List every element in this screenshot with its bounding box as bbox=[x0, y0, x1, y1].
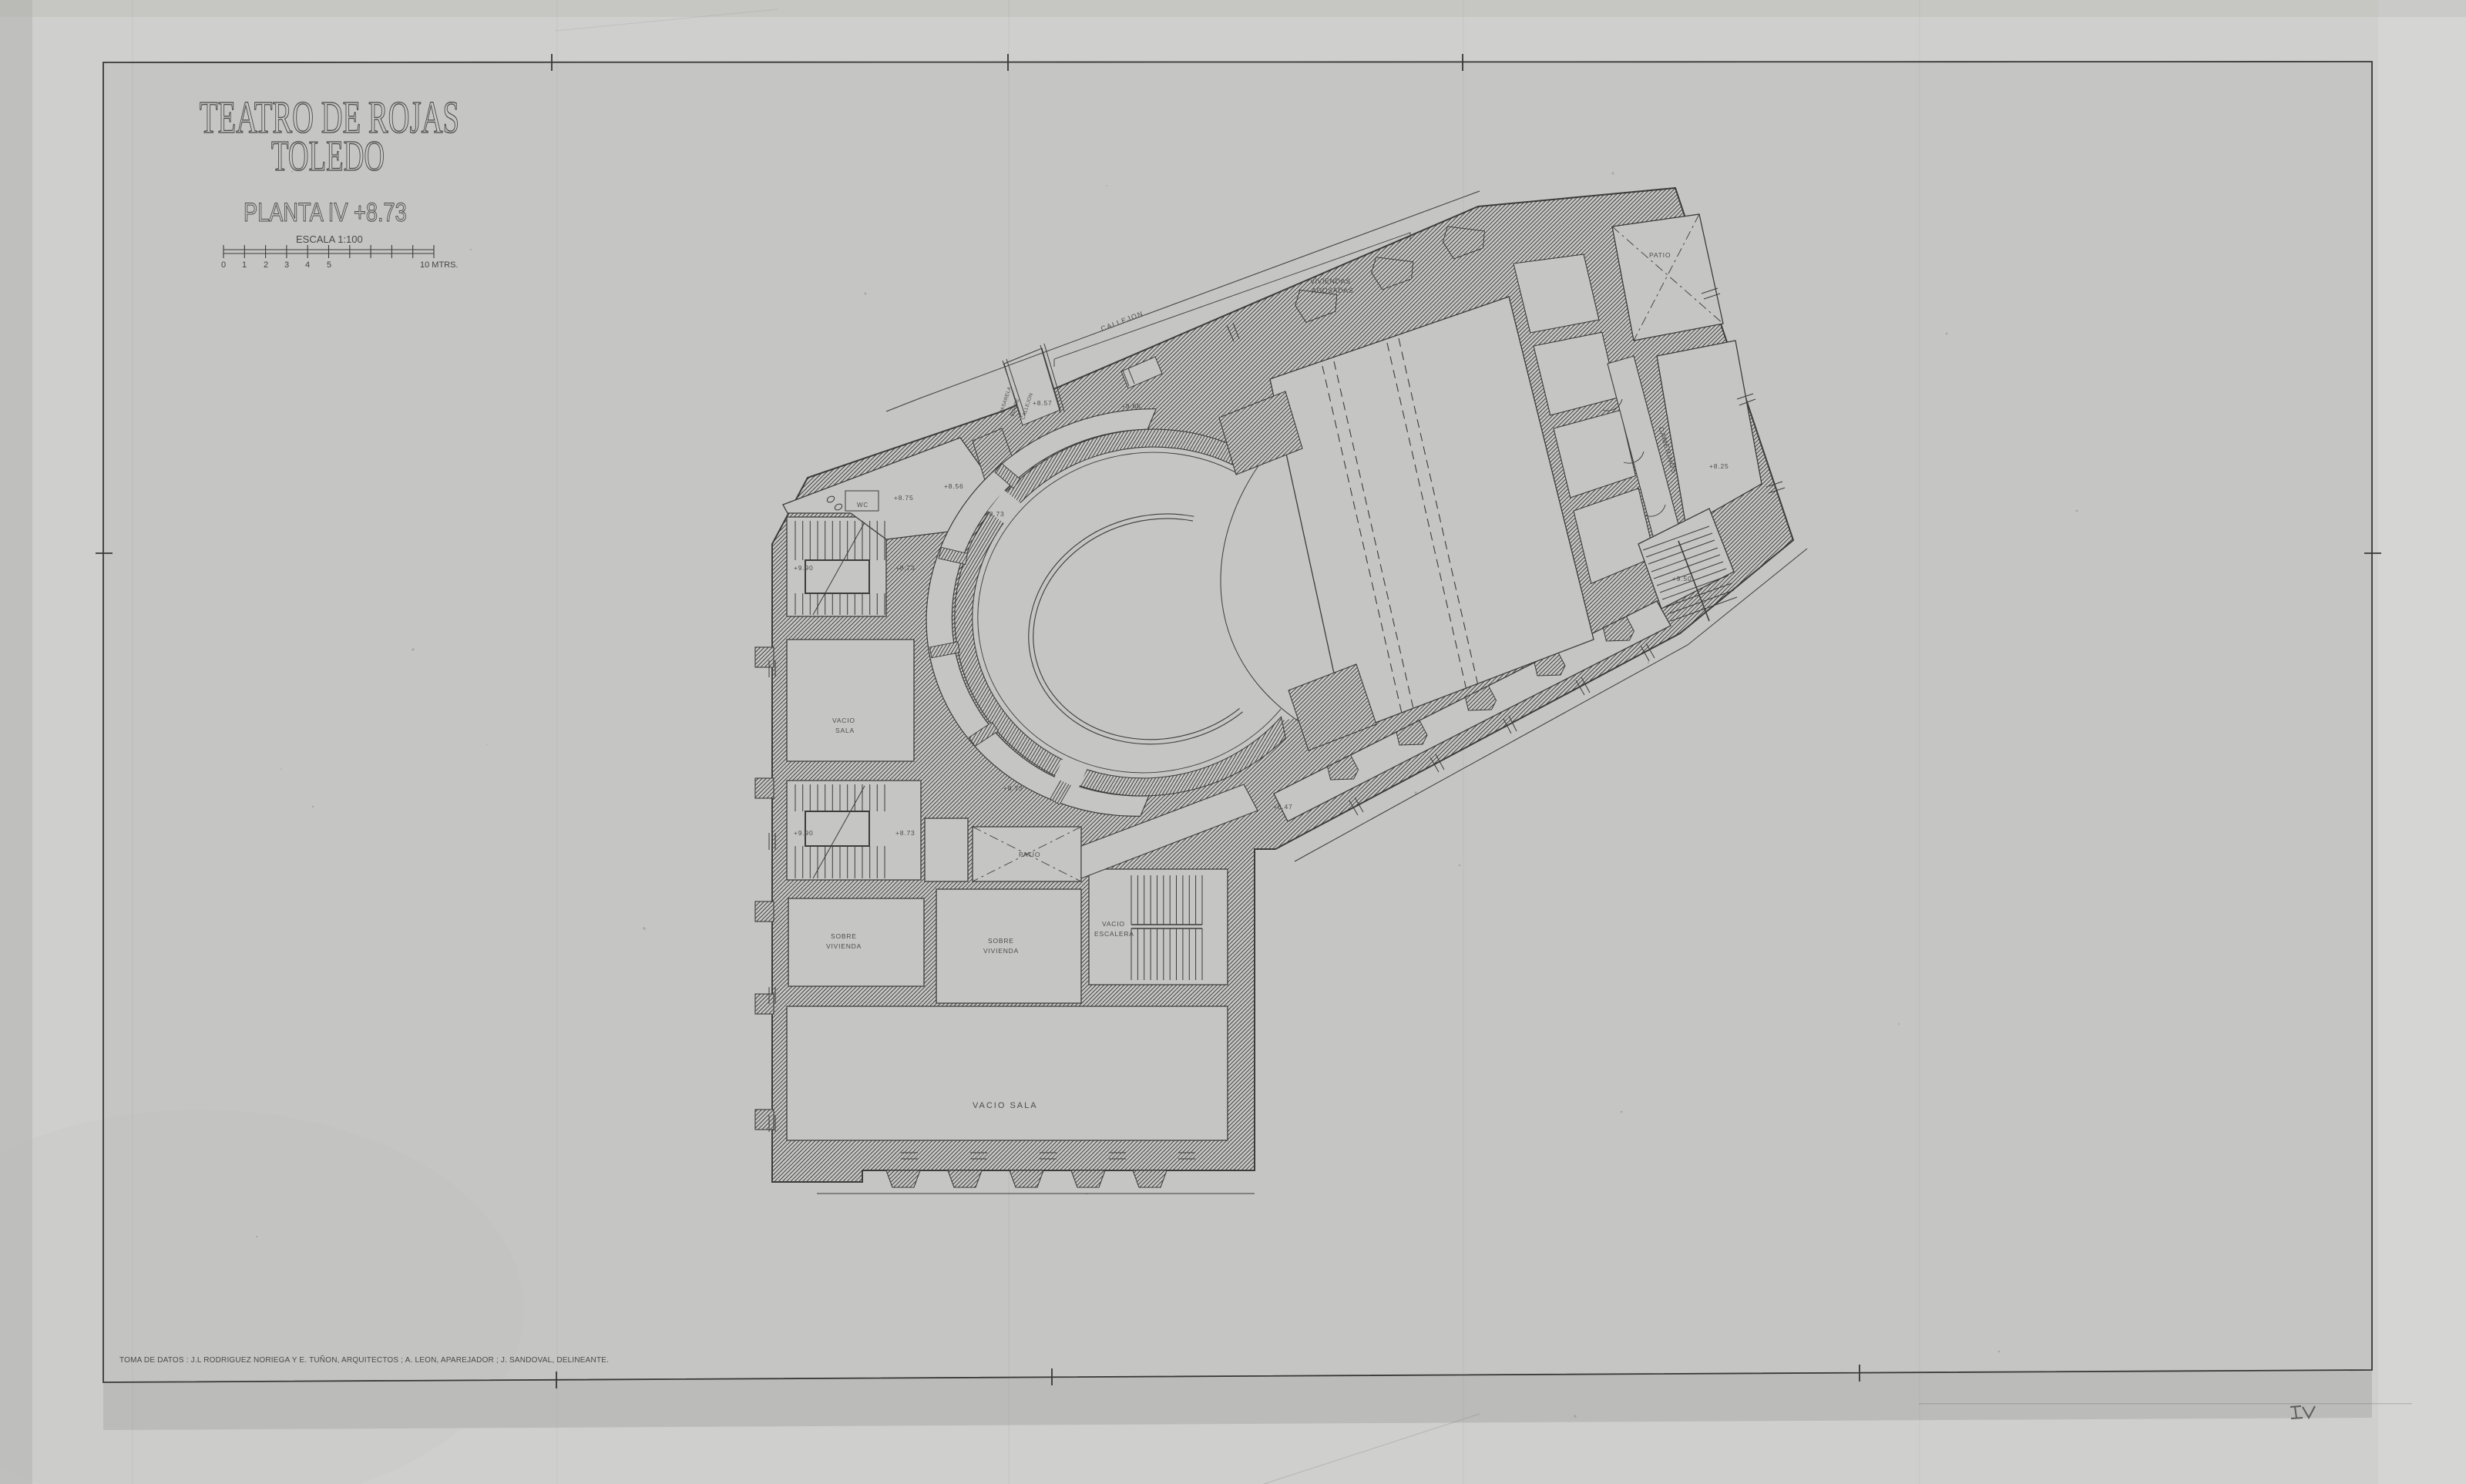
svg-text:ESCALERA: ESCALERA bbox=[1094, 930, 1134, 938]
svg-text:+8.73: +8.73 bbox=[1003, 784, 1023, 792]
svg-text:+9.50: +9.50 bbox=[1672, 575, 1692, 583]
svg-text:VACIO: VACIO bbox=[1102, 920, 1125, 928]
svg-text:SOBRE: SOBRE bbox=[831, 932, 857, 940]
svg-text:3: 3 bbox=[284, 260, 289, 270]
svg-text:1: 1 bbox=[242, 260, 247, 270]
svg-text:+8.68: +8.68 bbox=[1121, 402, 1141, 410]
svg-text:+8.56: +8.56 bbox=[944, 482, 964, 490]
svg-text:5: 5 bbox=[327, 260, 331, 270]
svg-text:+9.90: +9.90 bbox=[794, 564, 814, 572]
svg-text:+8.75: +8.75 bbox=[894, 494, 914, 502]
svg-text:+8.73: +8.73 bbox=[895, 829, 916, 837]
svg-text:+8.25: +8.25 bbox=[1709, 462, 1729, 470]
svg-text:VACIO SALA: VACIO SALA bbox=[973, 1101, 1038, 1110]
svg-text:+8.47: +8.47 bbox=[1273, 803, 1293, 811]
svg-text:TOLEDO: TOLEDO bbox=[271, 133, 385, 180]
svg-text:+8.73: +8.73 bbox=[985, 510, 1005, 518]
svg-text:VIVIENDA: VIVIENDA bbox=[826, 942, 862, 950]
svg-text:TOMA DE DATOS : J.L RODRIGU: TOMA DE DATOS : J.L RODRIGUEZ NORIEGA Y … bbox=[119, 1355, 609, 1365]
svg-text:VIVIENDA: VIVIENDA bbox=[983, 947, 1019, 955]
svg-text:4: 4 bbox=[305, 260, 310, 270]
svg-text:ESCALA 1:100: ESCALA 1:100 bbox=[296, 233, 363, 245]
svg-text:VACIO: VACIO bbox=[832, 717, 855, 724]
svg-text:PATIO: PATIO bbox=[1649, 251, 1671, 259]
svg-text:VIVIENDAS: VIVIENDAS bbox=[1310, 277, 1351, 285]
svg-text:ADOSADAS: ADOSADAS bbox=[1312, 287, 1353, 294]
svg-text:SALA: SALA bbox=[835, 727, 855, 734]
svg-text:SOBRE: SOBRE bbox=[988, 937, 1014, 945]
svg-text:+9.90: +9.90 bbox=[794, 829, 814, 837]
svg-text:+8.57: +8.57 bbox=[1033, 399, 1053, 407]
svg-text:0: 0 bbox=[221, 260, 226, 270]
svg-text:WC: WC bbox=[857, 502, 868, 509]
svg-text:PLANTA IV +8.73: PLANTA IV +8.73 bbox=[244, 197, 407, 227]
svg-text:10 MTRS.: 10 MTRS. bbox=[420, 260, 459, 270]
svg-text:PATIO: PATIO bbox=[1019, 851, 1040, 858]
svg-text:2: 2 bbox=[264, 260, 268, 270]
svg-text:+8.73: +8.73 bbox=[895, 564, 916, 572]
